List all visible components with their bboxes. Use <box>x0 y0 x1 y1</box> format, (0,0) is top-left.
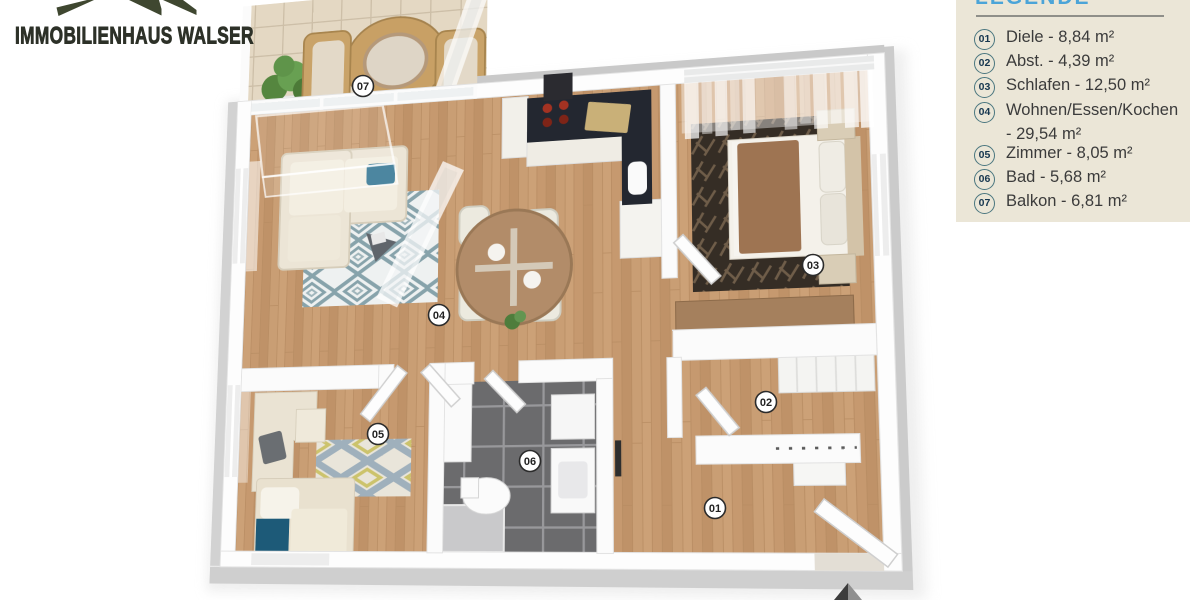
svg-text:07: 07 <box>357 81 369 93</box>
svg-text:03: 03 <box>807 260 819 272</box>
svg-text:01: 01 <box>709 503 721 515</box>
svg-text:IMMOBILIENHAUS WALSER: IMMOBILIENHAUS WALSER <box>15 23 254 49</box>
svg-text:02: 02 <box>760 397 772 409</box>
svg-text:04: 04 <box>433 310 446 322</box>
svg-text:05: 05 <box>372 429 384 441</box>
svg-text:06: 06 <box>524 456 536 468</box>
